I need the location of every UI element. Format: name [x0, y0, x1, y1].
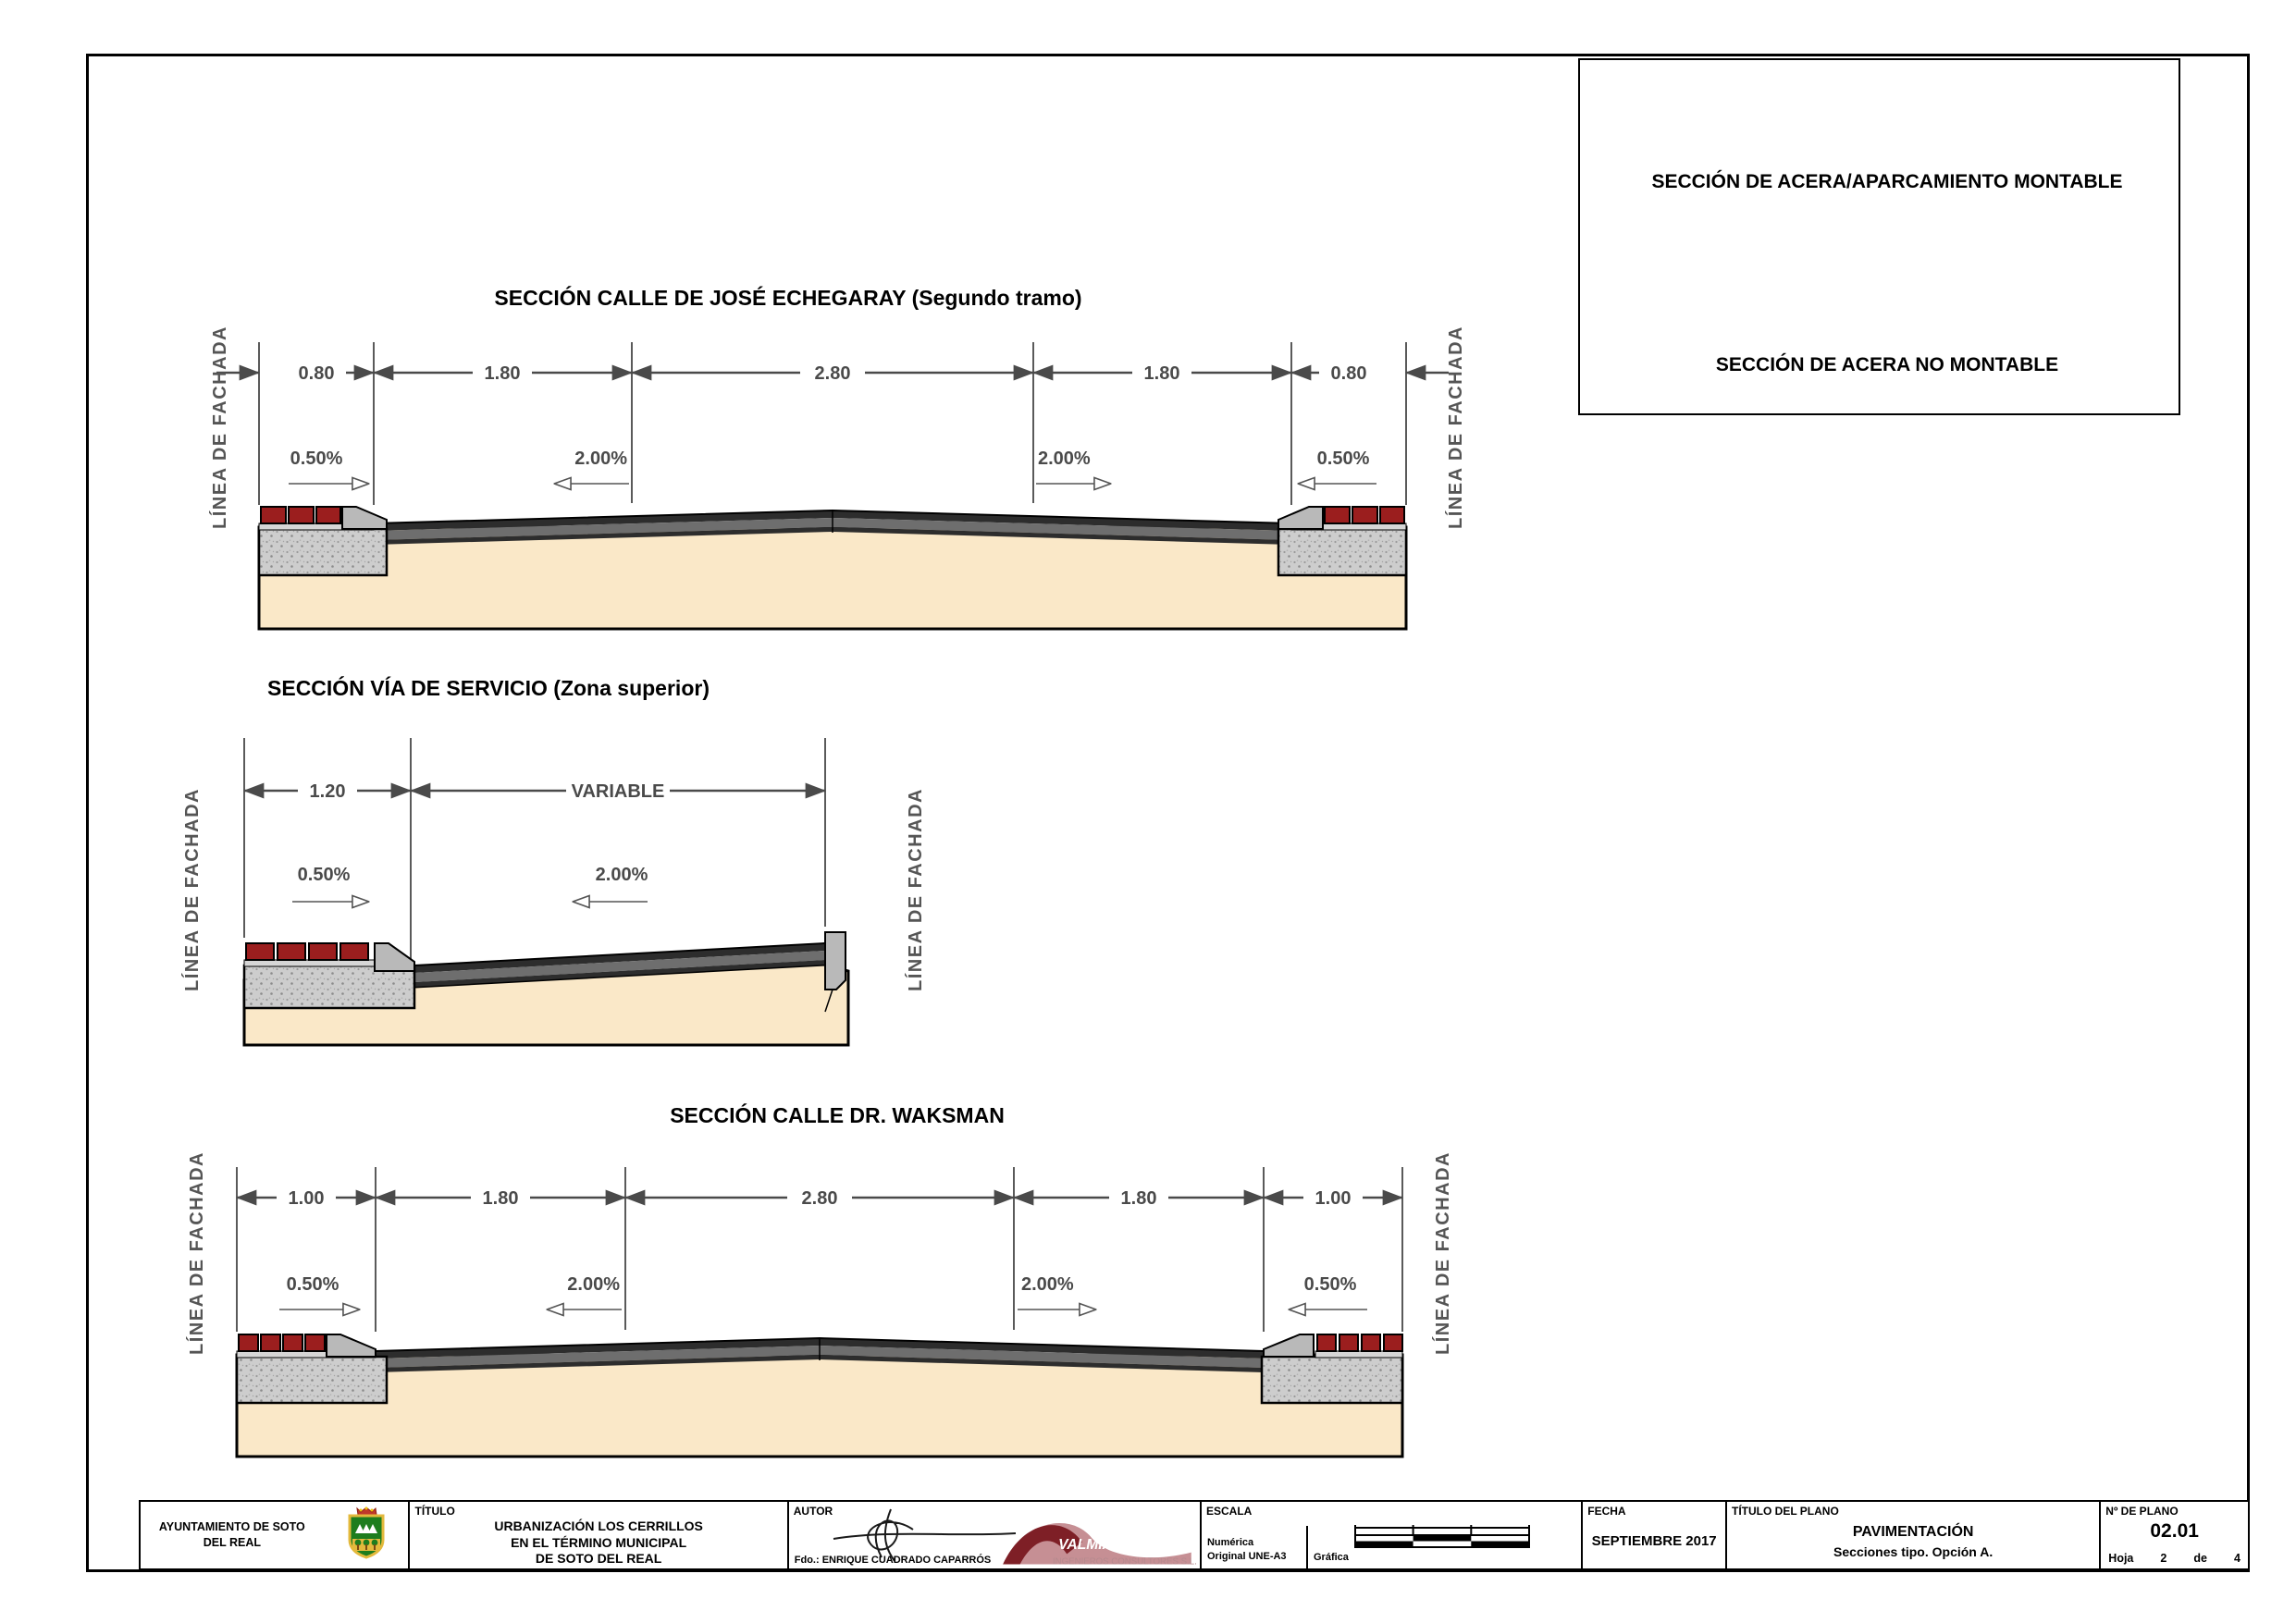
slope-label: 2.00%: [567, 1274, 620, 1295]
legend-label-no-montable: SECCIÓN DE ACERA NO MONTABLE: [1600, 354, 2174, 376]
author-name: Fdo.: ENRIQUE CUADRADO CAPARRÓS: [795, 1555, 991, 1566]
cross-section-graphic: [244, 932, 848, 1045]
titleblock-plano-cell: TÍTULO DEL PLANO PAVIMENTACIÓN Secciones…: [1727, 1502, 2101, 1568]
dim-label: VARIABLE: [572, 781, 665, 802]
svg-text:INGENIEROS CONSULTORES S.L.: INGENIEROS CONSULTORES S.L.: [1053, 1556, 1196, 1567]
num-label: Nº DE PLANO: [2105, 1505, 2178, 1518]
dim-label: 1.20: [310, 781, 346, 802]
legend-label-montable: SECCIÓN DE ACERA/APARCAMIENTO MONTABLE: [1600, 171, 2174, 193]
dim-label: 1.80: [1121, 1188, 1157, 1209]
valmia-logo: VALMIA INGENIEROS CONSULTORES S.L.: [997, 1505, 1196, 1569]
slope-label: 0.50%: [298, 865, 351, 885]
escala-numerica: Numérica Original UNE-A3: [1207, 1536, 1287, 1563]
dim-label: 2.80: [802, 1188, 838, 1209]
fecha-label: FECHA: [1587, 1505, 1625, 1518]
fecha-value: SEPTIEMBRE 2017: [1583, 1533, 1725, 1549]
facade-label-left: LÍNEA DE FACHADA: [186, 1151, 207, 1355]
section-title: SECCIÓN CALLE DE JOSÉ ECHEGARAY (Segundo…: [494, 285, 1081, 310]
titleblock-fecha-cell: FECHA SEPTIEMBRE 2017: [1583, 1502, 1727, 1568]
project-title: URBANIZACIÓN LOS CERRILLOS EN EL TÉRMINO…: [410, 1518, 786, 1568]
plano-subtitle: Secciones tipo. Opción A.: [1727, 1544, 2099, 1559]
dim-label: 0.80: [299, 363, 335, 384]
plano-label: TÍTULO DEL PLANO: [1732, 1505, 1839, 1518]
dim-label: 1.80: [485, 363, 521, 384]
titleblock-autor-cell: AUTOR Fdo.: ENRIQUE CUADRADO CAPARRÓS VA…: [789, 1502, 1202, 1568]
slope-label: 2.00%: [1038, 449, 1091, 469]
facade-label-right: LÍNEA DE FACHADA: [1445, 326, 1466, 529]
titleblock-num-cell: Nº DE PLANO 02.01 Hoja 2 de 4: [2101, 1502, 2248, 1568]
dim-label: 1.00: [1315, 1188, 1352, 1209]
drawing-sheet: SECCIÓN CALLE DE JOSÉ ECHEGARAY (Segundo…: [0, 0, 2296, 1623]
municipality-coat-of-arms: [342, 1506, 390, 1565]
titleblock-titulo-cell: TÍTULO URBANIZACIÓN LOS CERRILLOS EN EL …: [410, 1502, 788, 1568]
titleblock-escala-cell: ESCALA Numérica Original UNE-A3 Gráfica: [1202, 1502, 1583, 1568]
escala-label: ESCALA: [1206, 1505, 1252, 1518]
slope-label: 2.00%: [1021, 1274, 1074, 1295]
section-echegaray: SECCIÓN CALLE DE JOSÉ ECHEGARAY (Segundo…: [209, 285, 1466, 629]
slope-label: 2.00%: [574, 449, 627, 469]
slope-label: 0.50%: [1304, 1274, 1357, 1295]
dim-label: 2.80: [815, 363, 851, 384]
facade-label-right: LÍNEA DE FACHADA: [1432, 1151, 1453, 1355]
dim-label: 1.80: [483, 1188, 519, 1209]
facade-label-left: LÍNEA DE FACHADA: [209, 326, 230, 529]
sheet-counter: Hoja 2 de 4: [2108, 1552, 2240, 1565]
plano-title: PAVIMENTACIÓN: [1727, 1524, 2099, 1541]
slope-label: 2.00%: [596, 865, 648, 885]
graphic-scale-bar: [1352, 1524, 1533, 1550]
escala-grafica: Gráfica: [1314, 1552, 1349, 1563]
dim-label: 1.00: [289, 1188, 325, 1209]
dim-label: 0.80: [1331, 363, 1367, 384]
slope-label: 0.50%: [290, 449, 343, 469]
dim-label: 1.80: [1144, 363, 1180, 384]
section-servicio: SECCIÓN VÍA DE SERVICIO (Zona superior) …: [181, 675, 926, 1045]
plan-number: 02.01: [2101, 1520, 2248, 1543]
facade-label-left: LÍNEA DE FACHADA: [181, 788, 203, 991]
facade-label-right: LÍNEA DE FACHADA: [905, 788, 926, 991]
titulo-label: TÍTULO: [414, 1505, 454, 1518]
municipality-name: AYUNTAMIENTO DE SOTO DEL REAL: [159, 1519, 305, 1551]
section-title: SECCIÓN CALLE DR. WAKSMAN: [670, 1102, 1005, 1127]
section-title: SECCIÓN VÍA DE SERVICIO (Zona superior): [267, 675, 710, 700]
title-block: AYUNTAMIENTO DE SOTO DEL REAL TÍTULO URB…: [139, 1500, 2250, 1570]
cross-section-graphic: [237, 1334, 1402, 1457]
slope-label: 0.50%: [287, 1274, 339, 1295]
svg-text:VALMIA: VALMIA: [1058, 1537, 1113, 1553]
slope-label: 0.50%: [1317, 449, 1370, 469]
section-waksman: SECCIÓN CALLE DR. WAKSMAN 1.00 1.80 2.80…: [186, 1102, 1453, 1457]
titleblock-municipality-cell: AYUNTAMIENTO DE SOTO DEL REAL: [141, 1502, 410, 1568]
cross-section-graphic: [259, 507, 1406, 629]
escala-divider: [1306, 1526, 1308, 1568]
